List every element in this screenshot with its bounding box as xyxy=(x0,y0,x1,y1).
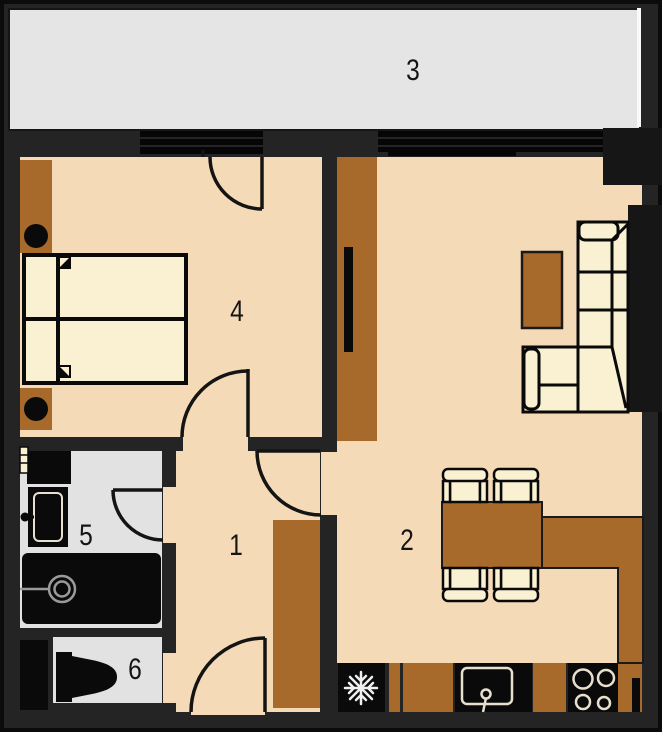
living-window xyxy=(378,131,603,137)
bedroom-window xyxy=(140,147,263,154)
room-label-bathroom: 5 xyxy=(79,521,93,551)
living-floor xyxy=(337,157,642,663)
living-window-slider xyxy=(388,152,516,156)
wall-pier xyxy=(603,128,662,185)
entrance-opening xyxy=(191,710,265,715)
bedroom-floor xyxy=(20,157,322,437)
media-wall-wardrobe xyxy=(337,157,377,441)
living-window xyxy=(378,139,603,145)
kitchen-sink-unit xyxy=(455,663,532,712)
wc-floor xyxy=(53,637,162,703)
kitchen-cabinet xyxy=(533,663,566,712)
duct-shaft xyxy=(20,640,48,710)
living-door-opening xyxy=(321,452,337,515)
room-label-wc: 6 xyxy=(128,655,142,685)
kitchen-cabinet xyxy=(403,663,453,712)
washing-machine xyxy=(27,451,71,484)
wall-pier xyxy=(628,205,662,412)
tv xyxy=(344,247,353,352)
room-label-hallway: 1 xyxy=(229,531,243,561)
kitchen-cabinet xyxy=(389,663,400,712)
bedroom-door-opening xyxy=(183,437,248,451)
cabinet-handle xyxy=(632,678,640,712)
fridge xyxy=(338,663,385,712)
terrace-edge xyxy=(637,8,641,127)
bedroom-wardrobe xyxy=(20,160,52,253)
room-label-bedroom: 4 xyxy=(230,297,244,327)
stove xyxy=(568,663,618,712)
bathroom-door-opening xyxy=(163,487,176,543)
room-label-living: 2 xyxy=(400,526,414,556)
bedroom-window xyxy=(140,139,263,145)
bedroom-window xyxy=(140,131,263,137)
terrace-floor xyxy=(8,8,641,131)
bathtub xyxy=(22,553,161,624)
wc-door-opening xyxy=(163,653,176,703)
room-label-terrace: 3 xyxy=(406,56,420,86)
floor-plan: 1 2 3 4 5 6 xyxy=(0,0,662,732)
hallway-wardrobe xyxy=(273,520,320,708)
nightstand xyxy=(20,388,52,430)
